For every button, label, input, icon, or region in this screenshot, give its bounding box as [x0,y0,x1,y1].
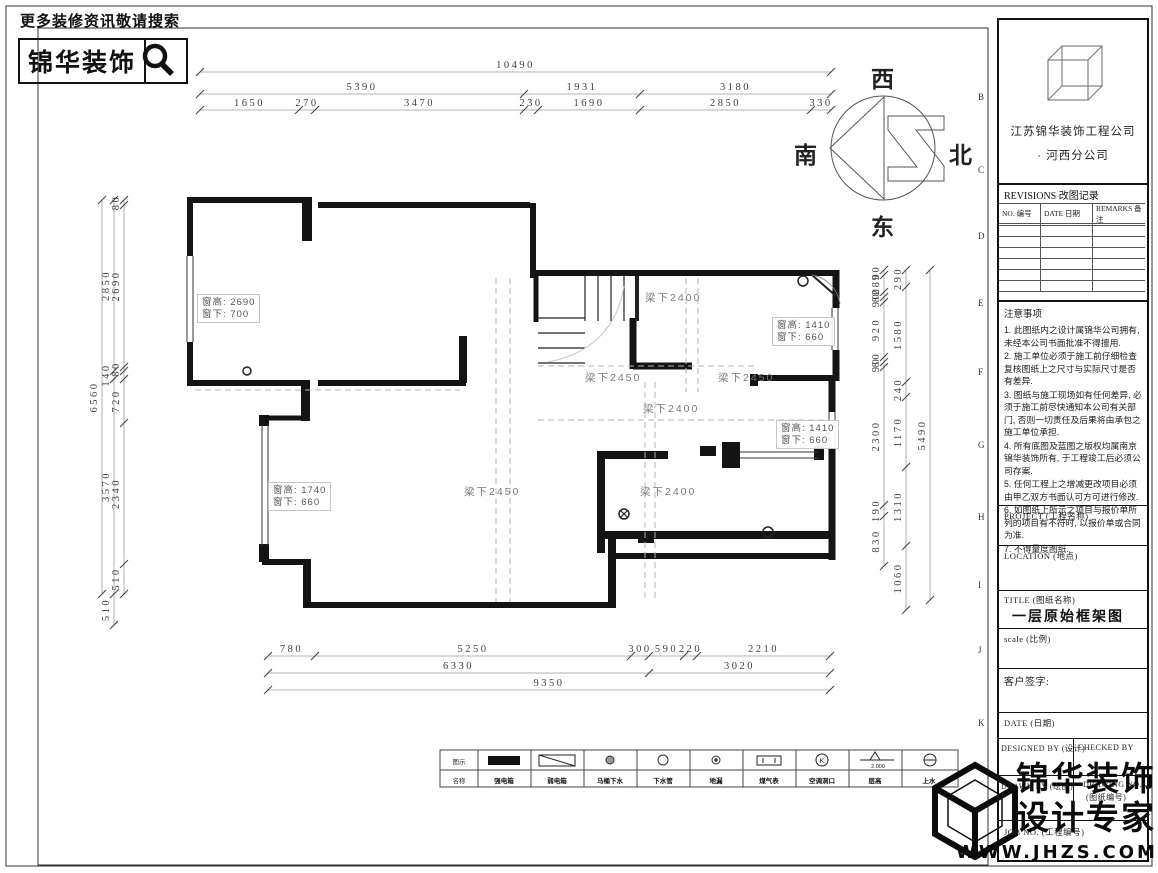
section-divider [997,545,1147,546]
svg-text:190: 190 [871,499,882,522]
svg-text:510: 510 [111,567,122,590]
svg-text:6560: 6560 [89,382,100,413]
sewer-pipe-icon [658,755,668,765]
scale-label: scale (比例) [1004,633,1051,645]
legend-item-name: 煤气表 [743,775,795,785]
svg-text:80: 80 [111,195,122,211]
rev-cell [1041,215,1093,226]
client-sign-label: 客户签字: [1004,673,1049,688]
section-divider [997,183,1147,185]
brand-name: 锦华装饰 [20,41,142,81]
beam-label: 梁下2450 [585,370,641,385]
svg-text:330: 330 [809,98,832,109]
company-branch: · 河西分公司 [999,147,1147,163]
date-label: DATE (日期) [1004,717,1055,729]
rev-cell [1041,281,1093,292]
svg-text:2.000: 2.000 [871,764,885,770]
svg-text:220: 220 [679,644,702,655]
svg-text:1580: 1580 [893,319,904,350]
grid-letter: K [978,718,985,728]
designed-by-label: DESIGNED BY (设计) [1001,743,1085,754]
level-mark-icon: 2.000 [860,752,894,770]
section-divider [997,668,1147,669]
svg-text:90: 90 [871,357,882,373]
rev-cell [1041,237,1093,248]
svg-text:3470: 3470 [404,98,435,109]
water-supply-icon [924,754,936,766]
section-divider [997,628,1147,629]
svg-text:6330: 6330 [443,661,474,672]
footer-brand-line2: 设计专家 [1016,799,1156,837]
svg-text:K: K [820,758,825,765]
svg-text:5250: 5250 [458,644,489,655]
compass-icon [830,96,944,200]
gas-meter-icon [757,756,781,765]
rev-cell [1041,259,1093,270]
svg-text:720: 720 [111,389,122,412]
rev-cell [1093,215,1145,226]
svg-text:240: 240 [893,378,904,401]
legend-item-name: 地漏 [690,775,742,785]
promo-text: 更多装修资讯敬请搜索 [20,10,180,31]
beam-label: 梁下2450 [718,370,774,385]
rev-cell [999,226,1041,237]
svg-text:270: 270 [295,98,318,109]
beam-label: 梁下2450 [464,484,520,499]
drawing-title: 一层原始框架图 [1012,606,1124,626]
rev-cell [1041,226,1093,237]
grid-letter: I [978,580,981,590]
legend-item-name: 下水管 [637,775,689,785]
rev-cell [999,237,1041,248]
note-item: 3. 图纸与施工现场如有任何差异, 必须于施工前尽快通知本公司有关部门, 否则一… [1004,389,1144,439]
company-name: 江苏锦华装饰工程公司 [999,123,1147,139]
location-label: LOCATION (地点) [1004,550,1078,562]
rev-cell [999,281,1041,292]
section-divider [997,712,1147,713]
svg-text:5490: 5490 [917,420,928,451]
grid-letter: E [978,298,984,308]
note-item: 4. 所有底图及蓝图之版权均属南京锦华装饰所有, 于工程竣工后必须公司存案. [1004,440,1144,477]
svg-text:2850: 2850 [710,98,741,109]
svg-text:1310: 1310 [893,491,904,522]
plan-symbols [243,275,840,537]
svg-text:510: 510 [101,598,112,621]
revisions-title: REVISIONS 改图记录 [1004,187,1099,202]
sheet-frame [6,6,1152,866]
project-label: PROJECT (工程名称) [1004,510,1089,522]
legend-symbol-header: 图示 [443,756,475,766]
svg-text:3180: 3180 [720,82,751,93]
svg-text:2300: 2300 [871,421,882,452]
beam-label: 梁下2400 [645,290,701,305]
door-pivot-circle [798,276,808,286]
rev-cell [1093,281,1145,292]
brand-box: 锦华装饰 [18,38,188,84]
svg-text:230: 230 [519,98,542,109]
svg-text:5390: 5390 [347,82,378,93]
svg-text:290: 290 [893,267,904,290]
grid-letter: B [978,92,984,102]
staircase [538,276,637,363]
beam-label: 梁下2400 [643,401,699,416]
svg-text:2690: 2690 [111,271,122,302]
svg-text:1170: 1170 [893,417,904,448]
section-divider [997,590,1147,591]
window-label: 窗高: 1740窗下: 660 [268,482,331,511]
legend-item-name: 层高 [849,775,901,785]
svg-text:590: 590 [655,644,678,655]
rev-cell [1093,237,1145,248]
rev-cell [999,270,1041,281]
rev-cell [1093,226,1145,237]
svg-text:780: 780 [280,644,303,655]
rev-cell [999,259,1041,270]
note-item: 2. 施工单位必须于施工前仔细检查复核图纸上之尺寸与实际尺寸是否有差异. [1004,350,1144,387]
svg-text:300: 300 [628,644,651,655]
column-circle [243,367,251,375]
rev-cell [999,215,1041,226]
compass-west-label: 西 [871,60,894,94]
grid-letter: H [978,512,985,522]
section-divider [997,300,1147,302]
legend-item-name: 空调洞口 [796,775,848,785]
svg-text:3020: 3020 [724,661,755,672]
footer-website: WWW.JHZS.COM [956,842,1158,863]
svg-text:90: 90 [871,292,882,308]
svg-text:2210: 2210 [748,644,779,655]
window-label: 窗高: 1410窗下: 660 [772,317,835,346]
svg-text:1650: 1650 [234,98,265,109]
rev-cell [999,248,1041,259]
ac-opening-icon: K [816,754,828,766]
legend-name-header: 名称 [443,775,475,785]
svg-text:10490: 10490 [496,60,535,71]
legend-item-name: 弱电箱 [531,775,583,785]
section-divider [997,738,1147,739]
rev-cell [1093,248,1145,259]
weak-power-box-icon [539,755,575,766]
grid-letter: F [978,367,983,377]
walls [187,197,838,605]
legend-item-name: 上水 [902,775,956,785]
toilet-drain-icon [606,756,614,764]
rev-cell [1041,270,1093,281]
legend-item-name: 马桶下水 [584,775,636,785]
svg-text:1690: 1690 [574,98,605,109]
svg-text:1931: 1931 [567,82,598,93]
brand-divider [144,40,146,82]
rev-cell [1041,248,1093,259]
grid-letter: G [978,440,985,450]
footer-brand-line1: 锦华装饰 [1016,760,1156,798]
note-item: 5. 任何工程上之增减更改项目必须由甲乙双方书面认可方可进行修改. [1004,478,1144,503]
svg-text:920: 920 [871,318,882,341]
beam-label: 梁下2400 [640,484,696,499]
note-item: 1. 此图纸内之设计属锦华公司拥有, 未经本公司书面批准不得擅用. [1004,324,1144,349]
checked-by-label: CHECKED BY [1078,743,1134,752]
door-leaf [812,275,836,296]
revisions-table: NO. 编号 DATE 日期 REMARKS 备注 [999,203,1145,292]
title-label: TITLE (图纸名称) [1004,594,1075,606]
svg-text:1060: 1060 [893,563,904,594]
drawing-sheet: K 2.000 [0,0,1158,873]
strong-power-box-icon [488,756,520,765]
grid-letter: J [978,645,982,655]
svg-text:2340: 2340 [111,478,122,509]
compass-south-label: 南 [794,136,817,170]
section-divider [997,505,1147,506]
legend-symbols: K 2.000 [488,752,936,770]
rev-cell [1093,270,1145,281]
grid-letter: C [978,165,984,175]
window-label: 窗高: 2690窗下: 700 [197,294,260,323]
svg-text:830: 830 [871,529,882,552]
grid-letter: D [978,231,985,241]
notes-title: 注意事项 [1004,308,1144,321]
floor-plan-canvas: K 2.000 [0,0,1158,873]
rev-cell [1093,259,1145,270]
svg-text:9350: 9350 [534,678,565,689]
window-label: 窗高: 1410窗下: 660 [776,420,839,449]
compass-east-label: 东 [871,208,894,242]
legend-item-name: 强电箱 [478,775,530,785]
svg-text:80: 80 [111,361,122,377]
compass-north-label: 北 [949,136,972,170]
floor-drain-icon [712,756,720,764]
